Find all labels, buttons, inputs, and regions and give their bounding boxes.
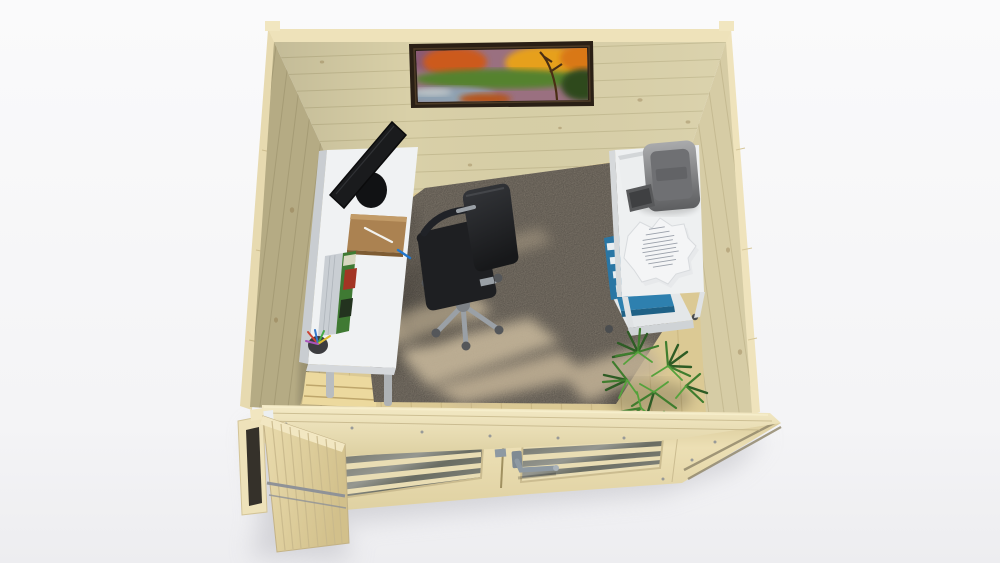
cabin-render bbox=[0, 0, 1000, 563]
notebook bbox=[347, 214, 410, 258]
painting-art bbox=[400, 44, 605, 105]
left-corner-post bbox=[265, 21, 280, 31]
render-viewport bbox=[0, 0, 1000, 563]
wall-painting bbox=[400, 41, 605, 108]
right-corner-post bbox=[719, 21, 734, 31]
back-top-edge bbox=[268, 29, 732, 42]
caster-wheel bbox=[605, 325, 613, 333]
floor-sunlit-threshold bbox=[302, 372, 378, 408]
